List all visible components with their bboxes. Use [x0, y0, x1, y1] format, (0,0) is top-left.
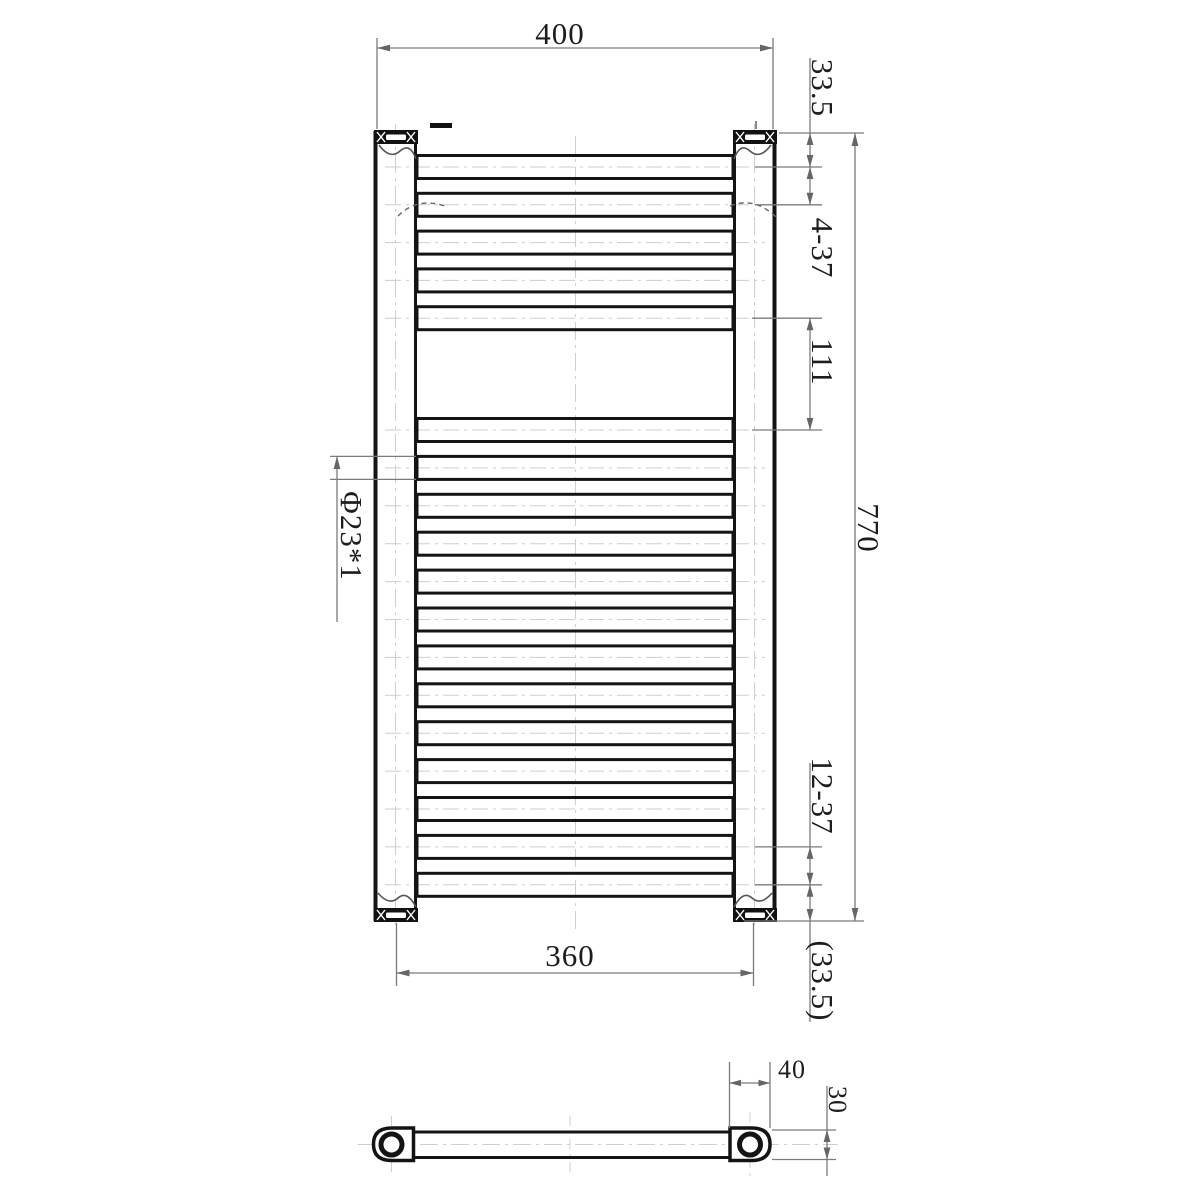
rung: [417, 231, 733, 254]
rung: [417, 156, 733, 179]
rung: [417, 798, 733, 821]
rung: [417, 873, 733, 896]
dim-label-middle-gap: 111: [805, 338, 840, 385]
rung: [417, 760, 733, 783]
dim-label-fitting-width: 40: [778, 1055, 806, 1084]
rung: [417, 835, 733, 858]
rung: [417, 193, 733, 216]
dim-label-bottom-pitch: 12-37: [805, 757, 840, 834]
side-view: [358, 1112, 838, 1178]
towel-radiator-drawing: 400 33.5 4-37 111 770 12-37 (33.5) 360 Φ…: [0, 0, 1200, 1200]
technical-drawing-sheet: 400 33.5 4-37 111 770 12-37 (33.5) 360 Φ…: [0, 0, 1200, 1200]
rung: [417, 269, 733, 292]
dim-label-overall-height: 770: [851, 503, 886, 553]
rung: [417, 494, 733, 517]
bracket-top-right: [733, 130, 777, 144]
rung: [417, 684, 733, 707]
dim-label-overall-width: 400: [535, 16, 585, 51]
rung: [417, 608, 733, 631]
rung: [417, 307, 733, 330]
rung: [417, 722, 733, 745]
rung: [417, 456, 733, 479]
rung: [417, 419, 733, 442]
dim-label-top-pitch: 4-37: [805, 218, 840, 279]
dim-label-top-offset: 33.5: [805, 59, 840, 117]
left-tube-section: [381, 1134, 402, 1155]
dim-label-mounting-width: 360: [545, 938, 595, 973]
dim-label-rail-depth: 30: [823, 1086, 852, 1114]
rung: [417, 570, 733, 593]
dim-label-bottom-offset: (33.5): [805, 941, 840, 1022]
rung: [417, 532, 733, 555]
bracket-bottom-right: [733, 908, 777, 922]
front-view: [374, 121, 777, 934]
rung: [417, 646, 733, 669]
right-tube-section: [740, 1134, 761, 1155]
bracket-bottom-left: [374, 908, 418, 922]
bracket-top-left: [374, 130, 418, 144]
dim-label-tube-spec: Φ23*1: [334, 491, 369, 581]
